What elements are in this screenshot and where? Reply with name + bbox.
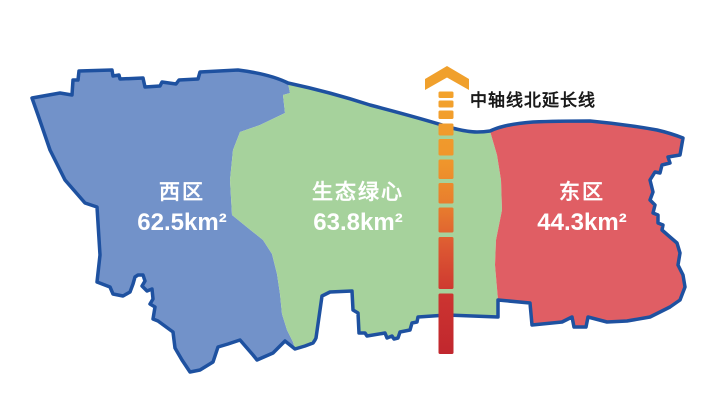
region-label-west: 西区 62.5km² [137,182,226,235]
region-east-area: 44.3km² [537,211,626,235]
region-west-name: 西区 [137,182,226,203]
region-label-green-heart: 生态绿心 63.8km² [312,182,404,235]
axis-line-label: 中轴线北延长线 [470,86,596,111]
axis-arrow-icon [425,66,469,90]
region-east-name: 东区 [537,182,626,203]
axis-dashed-line [439,92,454,355]
region-green-heart-area: 63.8km² [312,211,404,235]
region-label-east: 东区 44.3km² [537,182,626,235]
region-west-area: 62.5km² [137,211,226,235]
region-green-heart-name: 生态绿心 [312,182,404,203]
district-map: 中轴线北延长线 西区 62.5km² 生态绿心 63.8km² 东区 44.3k… [0,0,718,407]
